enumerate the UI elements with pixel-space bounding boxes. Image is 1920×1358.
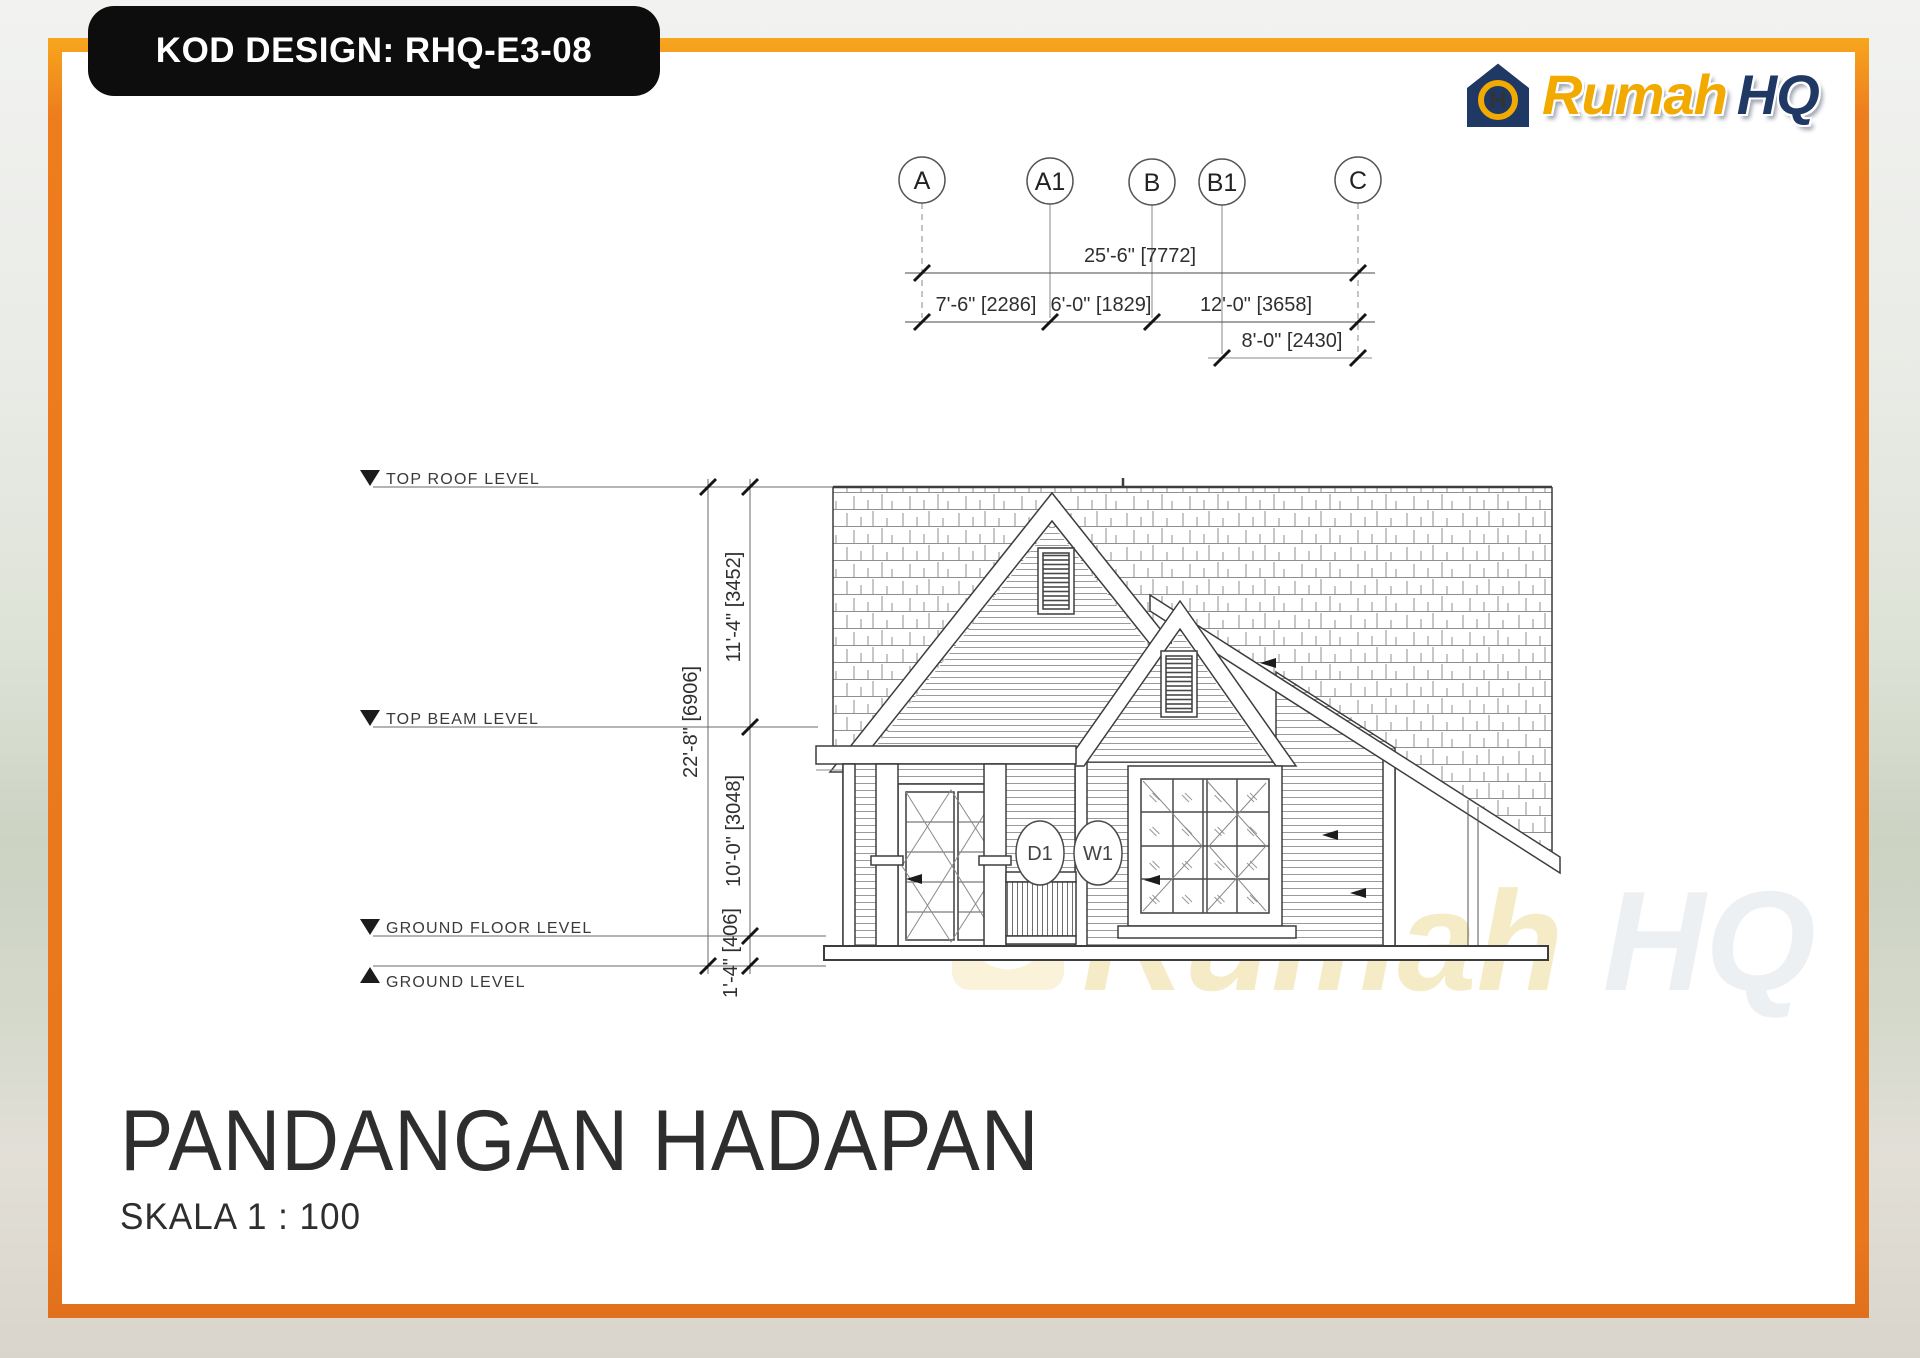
window-w1 <box>1118 766 1296 938</box>
level-label-ground: GROUND LEVEL <box>386 974 526 991</box>
vdim-total: 22'-8" [6906] <box>680 666 702 778</box>
post-cap-left <box>871 856 903 865</box>
grid-bubble-label-b1: B1 <box>1207 169 1238 197</box>
vdim-roof-to-beam: 11'-4" [3452] <box>723 552 745 663</box>
rumahhq-logo-icon: H <box>1462 58 1534 132</box>
view-scale: SKALA 1 : 100 <box>120 1196 1059 1238</box>
watermark-word2: HQ <box>1603 862 1816 1021</box>
dim-seg1: 7'-6" [2286] <box>936 294 1037 316</box>
small-gable-louver <box>1161 651 1197 717</box>
level-marker-top-beam <box>360 710 380 726</box>
level-label-top-beam: TOP BEAM LEVEL <box>386 711 539 728</box>
dimension-rows: 25'-6" [7772] 7'-6" [2286] 6'-0" [1829] … <box>905 245 1375 366</box>
vdim-beam-to-floor: 10'-0" [3048] <box>723 775 745 887</box>
tag-window-label: W1 <box>1083 843 1113 865</box>
porch-eave-fascia <box>816 746 1076 764</box>
design-code-badge: KOD DESIGN: RHQ-E3-08 <box>88 6 660 96</box>
title-block: PANDANGAN HADAPAN SKALA 1 : 100 <box>120 1096 1109 1238</box>
level-marker-ground <box>360 967 380 983</box>
dim-seg2: 6'-0" [1829] <box>1051 294 1152 316</box>
view-title: PANDANGAN HADAPAN <box>120 1096 1039 1186</box>
porch-post-right <box>984 764 1006 946</box>
grid-bubble-label-a1: A1 <box>1035 168 1066 196</box>
vdim-floor-to-ground: 1'-4" [406] <box>720 908 742 998</box>
logo-monogram: H <box>1489 87 1506 114</box>
grid-bubble-label-c: C <box>1349 167 1367 195</box>
logo-word-rumah: Rumah <box>1542 67 1727 123</box>
dim-overall: 25'-6" [7772] <box>1084 245 1196 267</box>
window-sill <box>1118 926 1296 938</box>
dim-seg4: 8'-0" [2430] <box>1242 330 1343 352</box>
tag-window: W1 <box>1074 821 1122 885</box>
logo-word-hq: HQ <box>1737 67 1819 123</box>
ground-slab <box>824 946 1548 960</box>
vertical-dimensions: 22'-8" [6906] 11'-4" [3452] 10'-0" [3048… <box>680 479 758 998</box>
level-marker-top-roof <box>360 470 380 486</box>
rumahhq-logo: H Rumah HQ <box>1462 58 1819 132</box>
dim-seg3: 12'-0" [3658] <box>1200 294 1312 316</box>
big-gable-louver <box>1038 548 1074 614</box>
grid-bubble-label-a: A <box>914 167 931 195</box>
level-labels: TOP ROOF LEVEL TOP BEAM LEVEL GROUND FLO… <box>360 470 593 991</box>
grid-bubble-label-b: B <box>1144 169 1161 197</box>
porch-post-left <box>876 764 898 946</box>
tag-door: D1 <box>1016 821 1064 885</box>
tag-door-label: D1 <box>1027 843 1053 865</box>
level-label-top-roof: TOP ROOF LEVEL <box>386 471 540 488</box>
level-label-ground-floor: GROUND FLOOR LEVEL <box>386 920 593 937</box>
post-cap-right <box>979 856 1011 865</box>
corner-board-right <box>1383 752 1395 946</box>
design-code-label: KOD DESIGN: RHQ-E3-08 <box>156 31 592 71</box>
level-marker-ground-floor <box>360 919 380 935</box>
porch-corner-trim <box>843 764 855 946</box>
